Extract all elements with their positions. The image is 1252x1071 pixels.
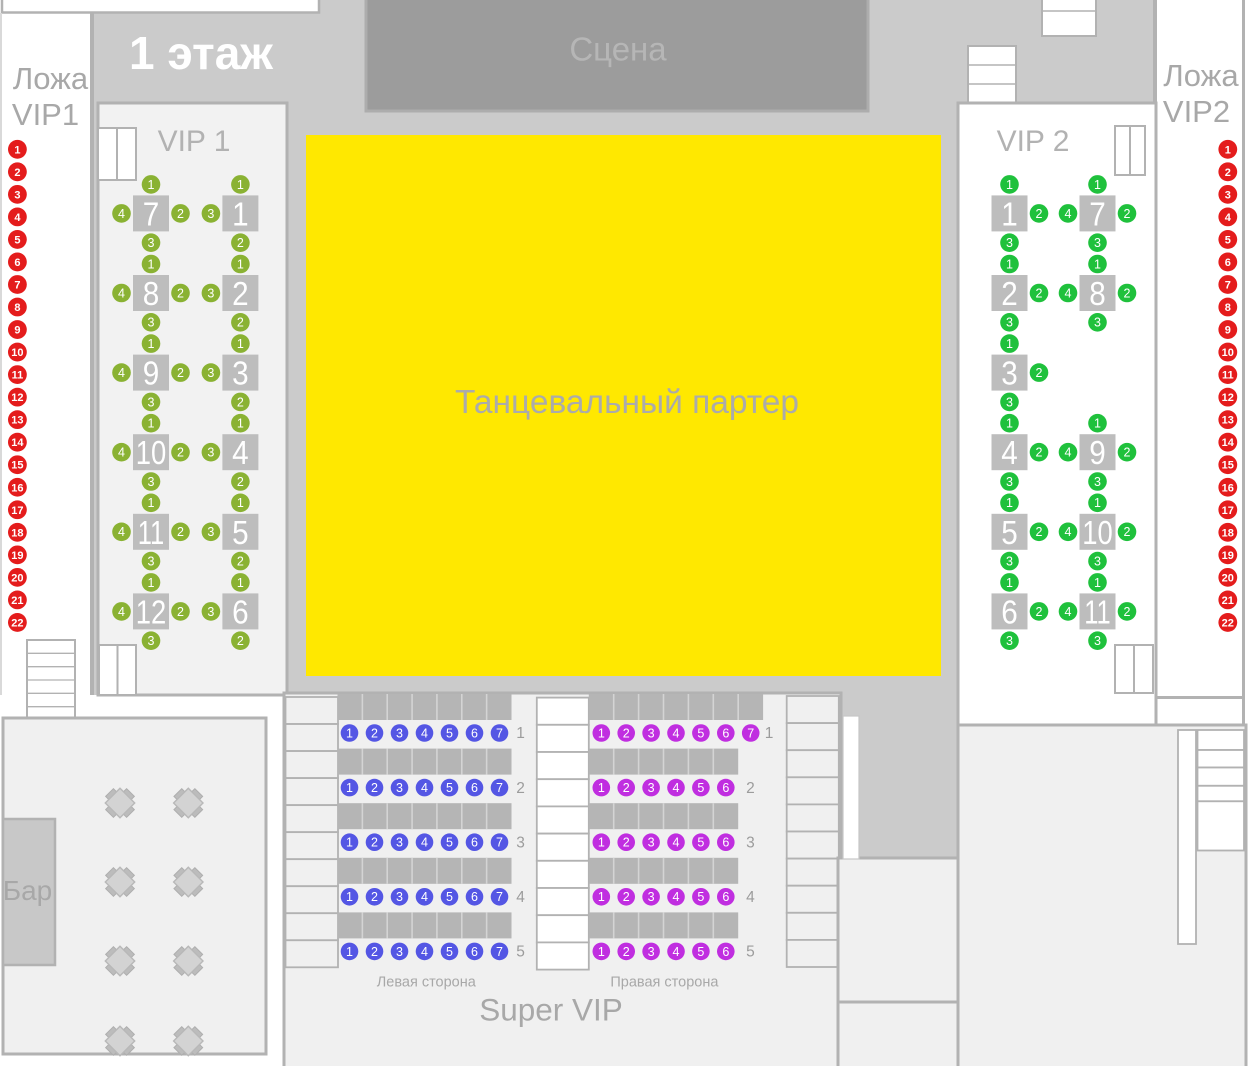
- svg-text:2: 2: [1036, 525, 1043, 539]
- svg-text:3: 3: [1006, 316, 1013, 330]
- svg-text:9: 9: [143, 355, 160, 392]
- svg-text:5: 5: [446, 945, 453, 959]
- svg-text:3: 3: [1006, 236, 1013, 250]
- svg-text:22: 22: [11, 617, 23, 629]
- svg-text:2: 2: [1124, 605, 1131, 619]
- svg-text:4: 4: [516, 889, 525, 906]
- svg-text:18: 18: [11, 527, 23, 539]
- svg-text:8: 8: [14, 302, 20, 314]
- svg-text:3: 3: [232, 355, 249, 392]
- svg-text:3: 3: [1094, 475, 1101, 489]
- svg-text:4: 4: [1065, 446, 1072, 460]
- svg-text:15: 15: [11, 460, 23, 472]
- svg-text:1: 1: [1006, 178, 1013, 192]
- svg-text:3: 3: [207, 446, 214, 460]
- svg-text:4: 4: [118, 207, 125, 221]
- svg-text:3: 3: [148, 475, 155, 489]
- svg-text:11: 11: [138, 514, 165, 551]
- svg-text:3: 3: [148, 316, 155, 330]
- svg-text:1: 1: [14, 144, 20, 156]
- svg-text:2: 2: [371, 890, 378, 904]
- svg-text:2: 2: [14, 167, 20, 179]
- svg-text:2: 2: [177, 366, 184, 380]
- svg-text:2: 2: [237, 395, 244, 409]
- svg-text:6: 6: [471, 781, 478, 795]
- svg-text:3: 3: [1001, 355, 1018, 392]
- svg-text:19: 19: [11, 550, 23, 562]
- svg-text:19: 19: [1222, 550, 1234, 562]
- svg-text:6: 6: [722, 945, 729, 959]
- svg-text:1: 1: [1006, 417, 1013, 431]
- svg-text:6: 6: [471, 890, 478, 904]
- svg-text:VIP2: VIP2: [1163, 94, 1230, 129]
- svg-text:4: 4: [1065, 605, 1072, 619]
- svg-text:3: 3: [207, 605, 214, 619]
- svg-text:22: 22: [1222, 617, 1234, 629]
- svg-text:3: 3: [396, 945, 403, 959]
- svg-text:1: 1: [1006, 576, 1013, 590]
- svg-text:2: 2: [237, 316, 244, 330]
- svg-text:VIP1: VIP1: [12, 97, 79, 132]
- svg-text:1: 1: [148, 178, 155, 192]
- svg-text:1: 1: [1006, 496, 1013, 510]
- svg-text:1: 1: [237, 576, 244, 590]
- svg-text:8: 8: [143, 275, 160, 312]
- svg-text:1: 1: [598, 726, 605, 740]
- svg-text:16: 16: [11, 482, 23, 494]
- svg-text:12: 12: [1222, 392, 1234, 404]
- svg-text:14: 14: [1222, 437, 1235, 449]
- svg-text:5: 5: [516, 944, 525, 961]
- svg-text:7: 7: [14, 279, 20, 291]
- svg-text:5: 5: [697, 836, 704, 850]
- svg-text:1: 1: [346, 836, 353, 850]
- svg-text:5: 5: [446, 726, 453, 740]
- svg-text:5: 5: [446, 836, 453, 850]
- svg-text:7: 7: [747, 726, 754, 740]
- svg-text:4: 4: [673, 726, 680, 740]
- svg-text:2: 2: [623, 726, 630, 740]
- svg-text:9: 9: [1225, 325, 1231, 337]
- svg-text:1: 1: [237, 417, 244, 431]
- svg-text:2: 2: [177, 286, 184, 300]
- svg-text:13: 13: [11, 415, 23, 427]
- svg-text:3: 3: [1006, 634, 1013, 648]
- svg-text:4: 4: [421, 781, 428, 795]
- svg-text:9: 9: [1089, 434, 1106, 471]
- svg-text:6: 6: [471, 836, 478, 850]
- svg-text:3: 3: [1006, 395, 1013, 409]
- svg-text:3: 3: [1094, 634, 1101, 648]
- svg-text:4: 4: [421, 945, 428, 959]
- svg-text:5: 5: [232, 514, 249, 551]
- svg-text:2: 2: [623, 836, 630, 850]
- svg-text:3: 3: [396, 726, 403, 740]
- svg-text:1: 1: [1001, 195, 1018, 232]
- svg-text:3: 3: [207, 207, 214, 221]
- svg-text:1: 1: [1006, 337, 1013, 351]
- svg-text:2: 2: [177, 207, 184, 221]
- svg-text:5: 5: [697, 945, 704, 959]
- svg-text:1: 1: [148, 576, 155, 590]
- svg-text:6: 6: [14, 257, 20, 269]
- svg-text:2: 2: [623, 781, 630, 795]
- svg-text:3: 3: [14, 189, 20, 201]
- svg-text:3: 3: [648, 945, 655, 959]
- svg-text:13: 13: [1222, 415, 1234, 427]
- svg-text:3: 3: [1094, 236, 1101, 250]
- svg-text:4: 4: [118, 605, 125, 619]
- svg-text:Super VIP: Super VIP: [479, 992, 623, 1028]
- svg-text:4: 4: [673, 836, 680, 850]
- svg-text:1: 1: [516, 725, 525, 742]
- svg-text:2: 2: [1124, 525, 1131, 539]
- svg-text:4: 4: [1065, 525, 1072, 539]
- svg-text:2: 2: [371, 945, 378, 959]
- svg-text:16: 16: [1222, 482, 1234, 494]
- svg-text:1: 1: [598, 836, 605, 850]
- svg-text:7: 7: [1225, 279, 1231, 291]
- svg-text:10: 10: [1222, 347, 1234, 359]
- svg-text:2: 2: [1036, 446, 1043, 460]
- svg-text:1: 1: [598, 890, 605, 904]
- svg-text:2: 2: [1124, 286, 1131, 300]
- svg-text:5: 5: [446, 781, 453, 795]
- svg-text:3: 3: [148, 634, 155, 648]
- svg-text:10: 10: [11, 347, 23, 359]
- svg-text:2: 2: [232, 275, 249, 312]
- svg-text:5: 5: [697, 890, 704, 904]
- svg-text:1: 1: [1094, 576, 1101, 590]
- svg-text:4: 4: [421, 726, 428, 740]
- svg-text:14: 14: [11, 437, 24, 449]
- svg-text:6: 6: [1001, 593, 1018, 630]
- svg-text:1: 1: [148, 337, 155, 351]
- svg-text:4: 4: [673, 781, 680, 795]
- svg-text:1: 1: [237, 337, 244, 351]
- svg-text:1: 1: [148, 496, 155, 510]
- svg-text:2: 2: [1036, 207, 1043, 221]
- svg-text:7: 7: [496, 945, 503, 959]
- svg-text:4: 4: [673, 890, 680, 904]
- svg-text:3: 3: [1094, 555, 1101, 569]
- svg-text:4: 4: [118, 286, 125, 300]
- svg-text:11: 11: [12, 370, 24, 382]
- svg-text:2: 2: [177, 525, 184, 539]
- svg-text:17: 17: [1222, 505, 1234, 517]
- svg-text:5: 5: [1001, 514, 1018, 551]
- svg-text:1: 1: [1094, 496, 1101, 510]
- svg-text:2: 2: [371, 836, 378, 850]
- svg-text:2: 2: [177, 446, 184, 460]
- svg-text:4: 4: [673, 945, 680, 959]
- svg-text:20: 20: [1222, 572, 1234, 584]
- svg-text:3: 3: [148, 395, 155, 409]
- svg-text:6: 6: [232, 593, 249, 630]
- svg-text:3: 3: [516, 834, 525, 851]
- svg-text:Танцевальный партер: Танцевальный партер: [455, 384, 799, 421]
- svg-text:VIP 1: VIP 1: [158, 125, 231, 158]
- svg-text:1: 1: [1094, 257, 1101, 271]
- svg-text:1 этаж: 1 этаж: [129, 27, 273, 79]
- svg-text:2: 2: [1036, 286, 1043, 300]
- svg-text:4: 4: [1065, 286, 1072, 300]
- svg-text:21: 21: [11, 595, 23, 607]
- svg-text:2: 2: [1124, 446, 1131, 460]
- svg-text:6: 6: [1225, 257, 1231, 269]
- svg-text:1: 1: [1225, 144, 1231, 156]
- svg-text:17: 17: [11, 505, 23, 517]
- svg-text:1: 1: [346, 890, 353, 904]
- svg-text:4: 4: [1001, 434, 1018, 471]
- svg-text:12: 12: [11, 392, 23, 404]
- svg-text:3: 3: [1006, 555, 1013, 569]
- svg-text:1: 1: [1094, 417, 1101, 431]
- svg-text:5: 5: [697, 726, 704, 740]
- svg-text:2: 2: [237, 236, 244, 250]
- svg-text:5: 5: [446, 890, 453, 904]
- svg-text:7: 7: [496, 890, 503, 904]
- svg-text:6: 6: [722, 726, 729, 740]
- svg-text:18: 18: [1222, 527, 1234, 539]
- svg-text:20: 20: [11, 572, 23, 584]
- svg-text:3: 3: [746, 834, 755, 851]
- svg-text:4: 4: [118, 446, 125, 460]
- svg-text:1: 1: [232, 195, 249, 232]
- svg-text:15: 15: [1222, 460, 1234, 472]
- svg-text:3: 3: [396, 890, 403, 904]
- svg-text:3: 3: [207, 366, 214, 380]
- svg-text:2: 2: [237, 475, 244, 489]
- svg-text:6: 6: [722, 781, 729, 795]
- svg-text:7: 7: [496, 836, 503, 850]
- svg-text:4: 4: [421, 890, 428, 904]
- svg-text:1: 1: [346, 945, 353, 959]
- svg-text:12: 12: [136, 593, 167, 630]
- svg-text:9: 9: [14, 325, 20, 337]
- svg-text:3: 3: [1225, 189, 1231, 201]
- svg-text:3: 3: [1006, 475, 1013, 489]
- svg-text:2: 2: [371, 726, 378, 740]
- svg-text:3: 3: [648, 890, 655, 904]
- svg-text:4: 4: [14, 212, 21, 224]
- svg-text:4: 4: [118, 366, 125, 380]
- svg-text:5: 5: [1225, 234, 1231, 246]
- svg-text:1: 1: [237, 257, 244, 271]
- svg-text:3: 3: [207, 525, 214, 539]
- svg-text:7: 7: [496, 726, 503, 740]
- svg-text:2: 2: [371, 781, 378, 795]
- svg-text:2: 2: [623, 890, 630, 904]
- svg-text:3: 3: [396, 781, 403, 795]
- svg-text:2: 2: [237, 555, 244, 569]
- svg-text:1: 1: [598, 781, 605, 795]
- svg-text:4: 4: [118, 525, 125, 539]
- svg-text:2: 2: [1001, 275, 1018, 312]
- svg-text:Ложа: Ложа: [13, 61, 89, 96]
- svg-text:3: 3: [148, 236, 155, 250]
- svg-text:Бар: Бар: [3, 875, 53, 906]
- svg-text:10: 10: [136, 434, 167, 471]
- svg-text:3: 3: [648, 726, 655, 740]
- svg-text:5: 5: [746, 944, 755, 961]
- svg-text:3: 3: [396, 836, 403, 850]
- svg-text:1: 1: [237, 496, 244, 510]
- svg-text:1: 1: [148, 417, 155, 431]
- svg-text:6: 6: [722, 890, 729, 904]
- svg-text:2: 2: [1036, 605, 1043, 619]
- svg-text:4: 4: [1225, 212, 1232, 224]
- svg-text:1: 1: [765, 725, 774, 742]
- svg-text:3: 3: [1094, 316, 1101, 330]
- svg-text:4: 4: [421, 836, 428, 850]
- svg-text:3: 3: [148, 555, 155, 569]
- svg-text:3: 3: [648, 781, 655, 795]
- svg-text:VIP 2: VIP 2: [997, 125, 1070, 158]
- svg-text:4: 4: [232, 434, 249, 471]
- svg-text:Левая сторона: Левая сторона: [377, 975, 477, 991]
- svg-text:Сцена: Сцена: [569, 31, 667, 68]
- svg-text:11: 11: [1222, 370, 1234, 382]
- svg-text:2: 2: [1124, 207, 1131, 221]
- svg-text:1: 1: [148, 257, 155, 271]
- svg-text:1: 1: [237, 178, 244, 192]
- svg-text:1: 1: [598, 945, 605, 959]
- svg-text:2: 2: [516, 780, 525, 797]
- svg-text:7: 7: [143, 195, 160, 232]
- svg-text:2: 2: [177, 605, 184, 619]
- svg-text:1: 1: [1094, 178, 1101, 192]
- svg-text:21: 21: [1222, 595, 1234, 607]
- svg-text:11: 11: [1084, 593, 1111, 630]
- svg-text:Правая сторона: Правая сторона: [610, 975, 719, 991]
- svg-text:2: 2: [1225, 167, 1231, 179]
- svg-text:6: 6: [471, 726, 478, 740]
- svg-text:1: 1: [346, 726, 353, 740]
- svg-text:7: 7: [496, 781, 503, 795]
- svg-text:8: 8: [1225, 302, 1231, 314]
- svg-text:3: 3: [207, 286, 214, 300]
- svg-text:8: 8: [1089, 275, 1106, 312]
- svg-text:7: 7: [1089, 195, 1106, 232]
- svg-text:1: 1: [1006, 257, 1013, 271]
- svg-text:4: 4: [1065, 207, 1072, 221]
- svg-text:2: 2: [746, 780, 755, 797]
- svg-text:6: 6: [722, 836, 729, 850]
- svg-text:1: 1: [346, 781, 353, 795]
- svg-text:2: 2: [623, 945, 630, 959]
- svg-text:3: 3: [648, 836, 655, 850]
- svg-text:4: 4: [746, 889, 755, 906]
- svg-text:6: 6: [471, 945, 478, 959]
- svg-text:Ложа: Ложа: [1163, 58, 1239, 93]
- svg-text:5: 5: [14, 234, 20, 246]
- svg-text:2: 2: [1036, 366, 1043, 380]
- svg-text:10: 10: [1082, 514, 1113, 551]
- svg-text:2: 2: [237, 634, 244, 648]
- svg-text:5: 5: [697, 781, 704, 795]
